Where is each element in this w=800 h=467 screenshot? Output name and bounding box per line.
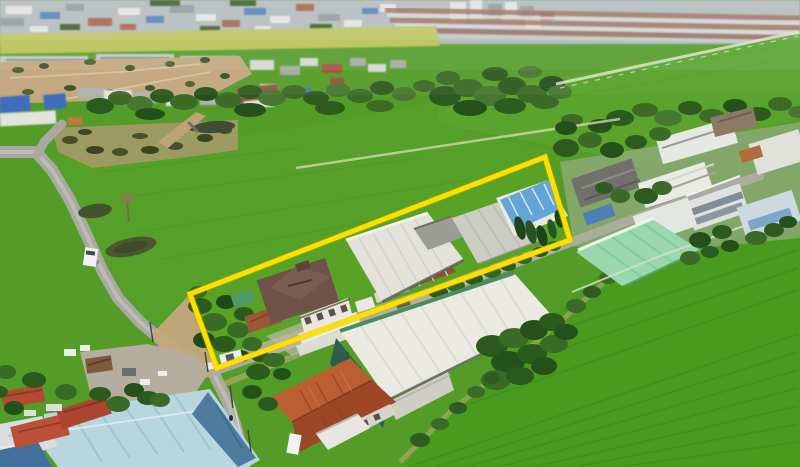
aerial-photo: Aerial drone photograph of highlighted l… [0, 0, 800, 467]
white-van [83, 247, 98, 267]
atmospheric-haze [0, 40, 800, 70]
aerial-photo-canvas [0, 0, 800, 467]
motorbike-on-road [229, 415, 233, 421]
atmospheric-haze [0, 70, 800, 95]
atmospheric-haze [0, 0, 800, 40]
bare-tree-crown [119, 192, 135, 204]
